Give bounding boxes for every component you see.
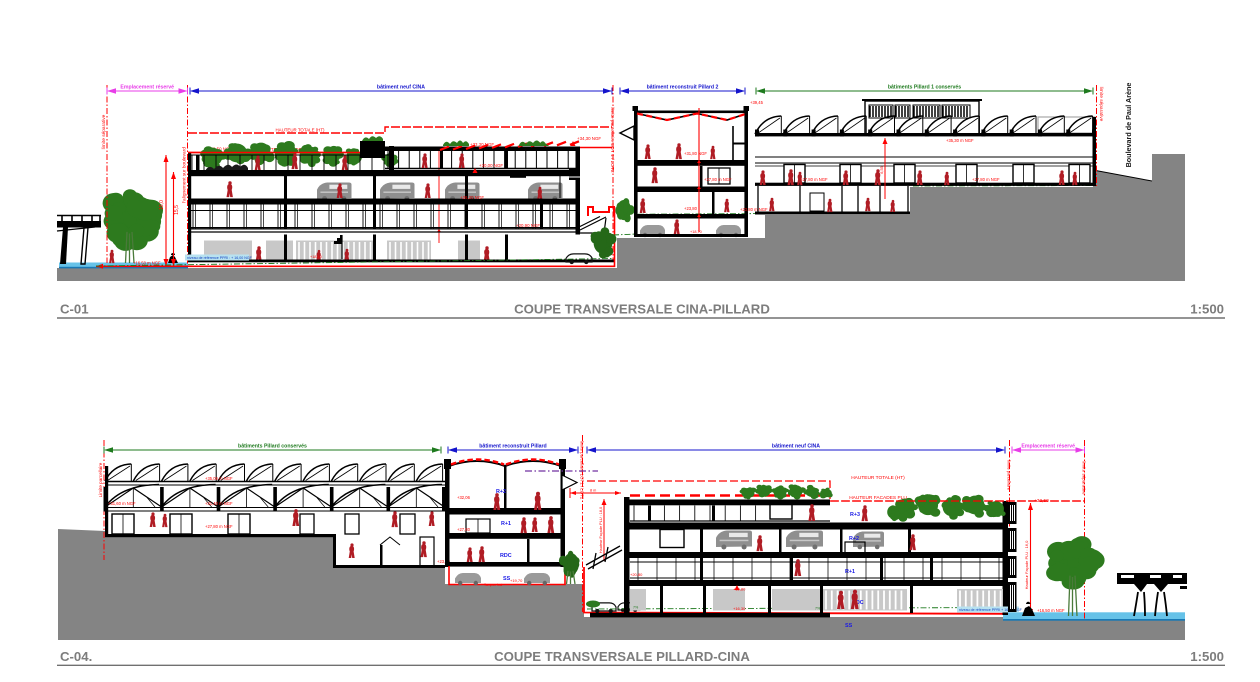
svg-text:bâtiment reconstruit Pillard: bâtiment reconstruit Pillard [479, 444, 546, 450]
svg-text:l'alignement sur boulevard: l'alignement sur boulevard [182, 147, 188, 203]
svg-text:18,0: 18,0 [159, 200, 165, 210]
svg-text:1:500: 1:500 [1190, 302, 1224, 317]
svg-text:limite parcellaire: limite parcellaire [1007, 460, 1012, 491]
svg-text:+32,06: +32,06 [457, 495, 471, 500]
svg-text:+35,30 m NGF: +35,30 m NGF [946, 138, 974, 143]
svg-text:+19,70: +19,70 [510, 578, 523, 583]
svg-text:SS: SS [845, 623, 853, 629]
svg-text:+27,80 m NGF: +27,80 m NGF [704, 177, 732, 182]
svg-text:+18,70: +18,70 [690, 230, 702, 234]
svg-text:RDC: RDC [500, 553, 512, 559]
svg-text:1:500: 1:500 [1190, 649, 1224, 664]
svg-text:+27,80 m NGF: +27,80 m NGF [800, 177, 828, 182]
svg-text:+32,50: +32,50 [1034, 498, 1049, 504]
svg-text:+34,30 NGF: +34,30 NGF [577, 136, 601, 141]
svg-text:+19,80: +19,80 [733, 587, 746, 592]
svg-text:+23,80: +23,80 [684, 206, 698, 211]
svg-text:HAUTEUR TOTALE (HT): HAUTEUR TOTALE (HT) [275, 128, 325, 133]
svg-text:15,5: 15,5 [174, 205, 180, 215]
svg-text:Limite parcellaire: Limite parcellaire [98, 462, 103, 497]
svg-text:+18,10: +18,10 [310, 255, 322, 259]
svg-text:limite séparative: limite séparative [1098, 87, 1104, 122]
svg-text:Hauteur Façade PLU : 16,0: Hauteur Façade PLU : 16,0 [1024, 540, 1029, 589]
svg-text:R+1: R+1 [501, 521, 511, 527]
svg-text:bâtiment reconstruit Pillard 2: bâtiment reconstruit Pillard 2 [647, 85, 719, 91]
svg-text:bâtiment neuf CINA: bâtiment neuf CINA [772, 444, 820, 450]
svg-text:R+3: R+3 [850, 512, 860, 518]
svg-text:bâtiments Pillard 1 conservés: bâtiments Pillard 1 conservés [888, 85, 961, 91]
svg-text:8 m: 8 m [590, 489, 596, 493]
svg-text:C-04.: C-04. [60, 649, 92, 664]
svg-text:7%: 7% [633, 606, 639, 610]
svg-text:+23,80 m NGF: +23,80 m NGF [740, 207, 768, 212]
svg-text:limite séparative: limite séparative [101, 114, 107, 149]
svg-text:Emplacement réservé: Emplacement réservé [120, 85, 174, 91]
svg-text:+27,80: +27,80 [457, 527, 471, 532]
svg-text:COUPE TRANSVERSALE CINA-PILLAR: COUPE TRANSVERSALE CINA-PILLARD [514, 302, 770, 317]
svg-text:bâtiments Pillard conservés: bâtiments Pillard conservés [238, 444, 307, 450]
svg-text:+27,80 m NGF: +27,80 m NGF [972, 177, 1000, 182]
svg-text:limite parcellaire LOT1 / LOT2: limite parcellaire LOT1 / LOT2 [580, 441, 585, 500]
svg-text:+33,30 NGF: +33,30 NGF [470, 142, 494, 147]
svg-text:HAUTEUR TOTALE (HT): HAUTEUR TOTALE (HT) [851, 475, 905, 481]
svg-text:+27,80 m NGF: +27,80 m NGF [205, 524, 233, 529]
svg-text:+30,00 NGF: +30,00 NGF [479, 163, 503, 168]
svg-text:bâtiment neuf CINA: bâtiment neuf CINA [377, 85, 425, 91]
svg-text:+35,06 m NGF: +35,06 m NGF [205, 476, 233, 481]
svg-text:+20,90 NGF: +20,90 NGF [516, 223, 540, 228]
svg-text:+20,80: +20,80 [630, 572, 643, 577]
svg-text:R+2: R+2 [496, 489, 506, 495]
svg-text:niveau de référence PPRI : + 1: niveau de référence PPRI : + 16,00 NGF [187, 256, 253, 260]
svg-text:R+1: R+1 [845, 569, 855, 575]
svg-text:COUPE TRANSVERSALE PILLARD-CIN: COUPE TRANSVERSALE PILLARD-CINA [494, 649, 750, 664]
svg-text:limite séparative: limite séparative [1082, 461, 1087, 495]
svg-text:+16,50 m NGF: +16,50 m NGF [1037, 608, 1065, 613]
svg-text:C-01: C-01 [60, 302, 89, 317]
svg-text:limite parcellaire LOT 1 / LOT: limite parcellaire LOT 1 / LOT2 [609, 107, 615, 173]
svg-text:Boulevard de Paul Arène: Boulevard de Paul Arène [1124, 83, 1133, 168]
svg-text:+16,30: +16,30 [733, 606, 746, 611]
svg-text:Emplacement réservé: Emplacement réservé [1021, 444, 1075, 450]
svg-text:+39,45: +39,45 [750, 100, 764, 105]
svg-text:6,55: 6,55 [880, 166, 884, 173]
svg-text:Hauteur Façade PLU : 18,0: Hauteur Façade PLU : 18,0 [599, 507, 603, 553]
svg-text:+26,20 NGF: +26,20 NGF [460, 195, 484, 200]
svg-text:+31,80 NGF: +31,80 NGF [684, 151, 707, 156]
svg-text:R+2: R+2 [849, 536, 859, 542]
svg-text:7%: 7% [815, 607, 821, 611]
svg-text:+31,40 m NGF: +31,40 m NGF [205, 501, 233, 506]
svg-text:+31,60 m NGF: +31,60 m NGF [108, 501, 136, 506]
